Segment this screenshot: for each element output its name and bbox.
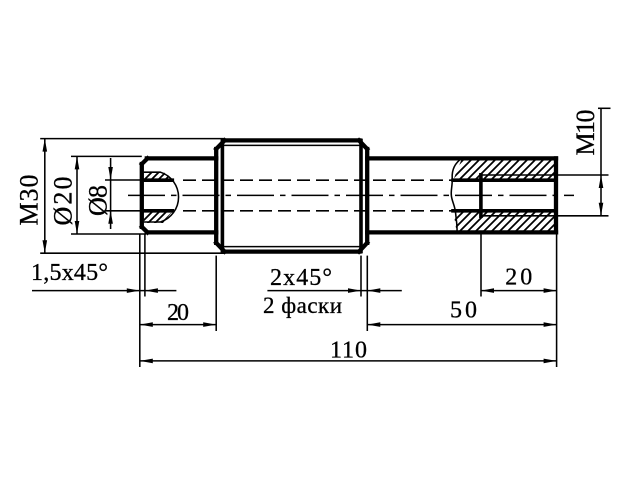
svg-text:20: 20 bbox=[167, 300, 189, 326]
svg-text:110: 110 bbox=[330, 338, 367, 364]
svg-text:M10: M10 bbox=[571, 110, 600, 156]
svg-text:M30: M30 bbox=[15, 175, 44, 226]
svg-text:1,5x45°: 1,5x45° bbox=[31, 260, 108, 286]
svg-text:2 фаски: 2 фаски bbox=[263, 293, 342, 318]
svg-text:Ø20: Ø20 bbox=[49, 177, 78, 226]
svg-text:Ø8: Ø8 bbox=[84, 185, 113, 216]
svg-text:2x45°: 2x45° bbox=[270, 265, 332, 291]
